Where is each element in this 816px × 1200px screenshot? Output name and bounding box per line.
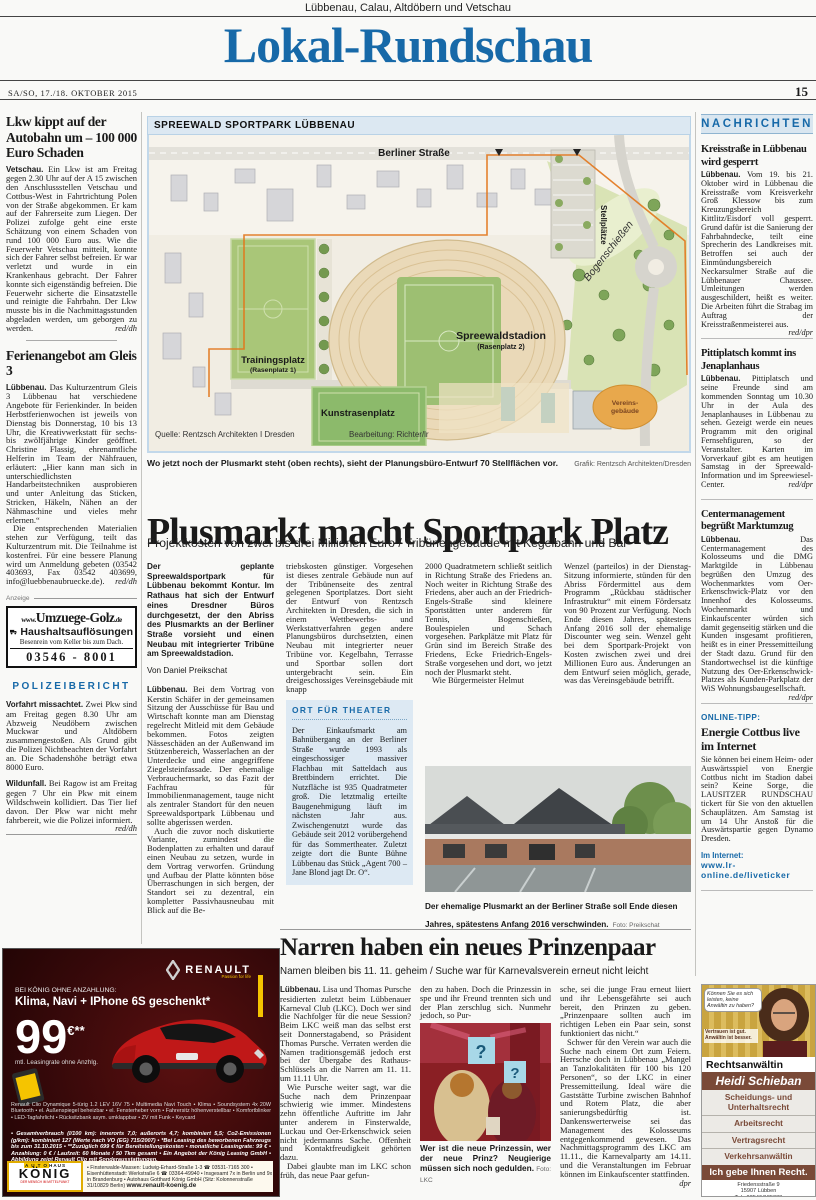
ad-slogan: Ich gebe Ihnen Recht. xyxy=(702,1165,815,1180)
svg-text:gebäude: gebäude xyxy=(611,408,639,415)
map-graphic: Berliner Straße Stellplätze Bogenschieße… xyxy=(147,135,691,453)
page-number: 15 xyxy=(795,84,808,100)
svg-text:?: ? xyxy=(510,1065,519,1082)
map-title: SPREEWALD SPORTPARK LÜBBENAU xyxy=(147,116,691,135)
article-body: Lübbenau. Das Kulturzentrum Gleis 3 Lübb… xyxy=(6,383,137,525)
news-heading: NACHRICHTEN xyxy=(701,114,813,134)
photo-credit: Foto: Preikschat xyxy=(613,922,660,929)
map-label-stadion: Spreewaldstadion xyxy=(456,330,546,342)
dateline: SA/SO, 17./18. OKTOBER 2015 15 xyxy=(8,84,808,100)
golz-url[interactable]: www.Umzuege-Golz.de xyxy=(10,610,133,626)
speech-bubble: Können Sie es sich leisten, keine Anwält… xyxy=(704,988,762,1012)
map-caption-row: Wo jetzt noch der Plusmarkt steht (oben … xyxy=(147,458,691,468)
divider xyxy=(701,703,813,704)
article-body: Vetschau. Ein Lkw ist am Freitag gegen 2… xyxy=(6,165,137,333)
main-col-1: Der geplante Spreewaldsportpark für Lübb… xyxy=(147,562,274,915)
news-article-body: Lübbenau. Vom 19. bis 21. Oktober wird i… xyxy=(701,171,813,329)
online-tipp-body: Sie können bei einem Heim- oder Auswärts… xyxy=(701,756,813,844)
divider xyxy=(701,499,813,500)
byline: Von Daniel Preikschat xyxy=(147,667,274,676)
narren-col-2: den zu haben. Doch die Prinzessin in spe… xyxy=(420,985,551,1187)
divider xyxy=(701,890,813,891)
map-label-verein: Vereins- xyxy=(612,400,638,407)
renault-offer-line1: BEI KÖNIG OHNE ANZAHLUNG: xyxy=(15,987,117,994)
article-lead: Der geplante Spreewaldsportpark für Lübb… xyxy=(147,562,274,659)
online-tipp-label: ONLINE-TIPP: xyxy=(701,713,813,722)
map-label-strasse: Berliner Straße xyxy=(378,148,450,159)
specialty-item: Verkehrsanwältin xyxy=(702,1148,815,1165)
map-editor: Bearbeitung: Richter/lr xyxy=(349,430,429,439)
map-label-stellplaetze: Stellplätze xyxy=(599,205,608,245)
article-headline: Lkw kippt auf der Autobahn um – 100 000 … xyxy=(6,114,137,161)
news-article-headline: Pittiplatsch kommt ins Jenaplanhaus xyxy=(701,348,813,373)
renault-brand: RENAULT Passion for life xyxy=(166,960,251,980)
golz-tagline: Besenrein vom Keller bis zum Dach. xyxy=(10,638,133,649)
masthead-title: Lokal-Rundschau xyxy=(0,17,816,73)
map-caption: Wo jetzt noch der Plusmarkt steht (oben … xyxy=(147,458,558,468)
golz-ad[interactable]: www.Umzuege-Golz.de Haushaltsauflösungen… xyxy=(6,606,137,668)
divider xyxy=(0,99,816,100)
specialty-item: Arbeitsrecht xyxy=(702,1115,815,1132)
dealer-url[interactable]: www.renault-koenig.de xyxy=(127,1182,197,1189)
divider xyxy=(292,719,407,720)
narren-col-3: sche, sei die junge Frau erneut liiert u… xyxy=(560,985,691,1187)
narren-col-1: Lübbenau. Lisa und Thomas Pursche residi… xyxy=(280,985,411,1187)
speech-bubble-2: Vertrauen ist gut. Anwältin ist besser. xyxy=(704,1029,758,1043)
golz-phone[interactable]: 03546 - 8001 xyxy=(10,649,133,666)
main-subhead: Projektkosten von zwei bis drei Millione… xyxy=(147,536,691,550)
article-headline: Ferienangebot am Gleis 3 xyxy=(6,348,137,379)
lawyer-name: Heidi Schieban xyxy=(702,1072,815,1090)
divider xyxy=(701,338,813,339)
news-article-body: Lübbenau. Das Centermanagement des Kolos… xyxy=(701,536,813,694)
prinzenpaar-photo: ? ? xyxy=(420,1023,551,1143)
renault-diamond-icon xyxy=(166,960,180,980)
infobox-body: Der Einkaufsmarkt am Bahnübergang an der… xyxy=(292,726,407,878)
lawyer-portrait: Können Sie es sich leisten, keine Anwält… xyxy=(702,985,815,1057)
police-report-heading: POLIZEIBERICHT xyxy=(6,681,137,692)
plusmarkt-caption: Der ehemalige Plusmarkt an der Berliner … xyxy=(425,896,691,932)
theater-infobox: ORT FÜR THEATER Der Einkaufsmarkt am Bah… xyxy=(286,700,413,885)
divider xyxy=(26,340,118,341)
sportpark-map: SPREEWALD SPORTPARK LÜBBENAU xyxy=(147,116,691,453)
news-article-headline: Centermanagement begrüßt Marktumzug xyxy=(701,509,813,534)
narren-article: Narren haben ein neues Prinzenpaar Namen… xyxy=(280,934,691,1187)
anzeige-marker: Anzeige xyxy=(6,595,137,602)
divider xyxy=(0,80,816,81)
schieban-ad[interactable]: Können Sie es sich leisten, keine Anwält… xyxy=(701,984,816,1197)
autohaus-koenig-logo: AUTOAUTOHAUSHAUS KÖNIG DER MENSCH IM MIT… xyxy=(7,1161,83,1192)
svg-text:(Rasenplatz 2): (Rasenplatz 2) xyxy=(477,344,524,351)
renault-consumption: • Gesamtverbrauch (l/100 km): innerorts … xyxy=(11,1131,271,1164)
internet-label: Im Internet: xyxy=(701,851,813,860)
liveticker-link[interactable]: www.lr-online.de/liveticker xyxy=(701,860,813,880)
lawyer-photo-figure xyxy=(753,985,815,1057)
map-credit: Grafik: Rentzsch Architekten/Dresden xyxy=(574,461,691,468)
lawyer-address: Friedensstraße 9 15907 Lübben Tel.: 0354… xyxy=(702,1180,815,1198)
police-item: Wildunfall. Bei Ragow ist am Freitag geg… xyxy=(6,779,137,824)
region-line: Lübbenau, Calau, Altdöbern und Vetschau xyxy=(0,2,816,14)
renault-ad[interactable]: RENAULT Passion for life BEI KÖNIG OHNE … xyxy=(2,948,280,1197)
article-body: Die entsprechenden Materialien stehen zu… xyxy=(6,524,137,586)
renault-specs: Renault Clio Dynamique 5-türig 1.2 LEV 1… xyxy=(11,1102,271,1121)
renault-dealer-footer: AUTOAUTOHAUSHAUS KÖNIG DER MENSCH IM MIT… xyxy=(7,1161,273,1192)
specialty-item: Scheidungs- und Unterhaltsrecht xyxy=(702,1090,815,1115)
specialty-item: Vertragsrecht xyxy=(702,1132,815,1149)
narren-photo-caption: Wer ist die neue Prinzessin, wer der neu… xyxy=(420,1143,551,1186)
news-article-headline: Kreisstraße in Lübbenau wird gesperrt xyxy=(701,144,813,169)
police-item: Vorfahrt missachtet. Zwei Pkw sind am Fr… xyxy=(6,700,137,771)
renault-car-image xyxy=(98,997,273,1097)
renault-price-sub: mtl. Leasingrate ohne Anzhlg. xyxy=(15,1059,98,1066)
narren-headline: Narren haben ein neues Prinzenpaar xyxy=(280,934,691,962)
news-column: NACHRICHTEN Kreisstraße in Lübbenau wird… xyxy=(701,114,813,900)
plusmarkt-photo xyxy=(425,766,691,892)
column-divider xyxy=(695,112,696,976)
golz-service: Haushaltsauflösungen xyxy=(10,626,133,638)
divider xyxy=(280,929,691,930)
map-label-kunstrasen: Kunstrasenplatz xyxy=(321,408,395,419)
online-tipp-headline: Energie Cottbus live im Internet xyxy=(701,726,813,753)
phone-image xyxy=(11,1065,54,1107)
main-col-2: triebskosten günstiger. Vorgesehen ist d… xyxy=(286,562,413,915)
svg-text:(Rasenplatz 1): (Rasenplatz 1) xyxy=(250,367,296,374)
column-divider xyxy=(141,112,142,944)
map-source: Quelle: Rentzsch Architekten I Dresden xyxy=(155,430,295,439)
truck-icon xyxy=(10,627,17,637)
dealer-info: • Finsterwalde-Massen: Ludwig-Erhard-Str… xyxy=(87,1165,273,1189)
divider xyxy=(6,834,137,835)
date-text: SA/SO, 17./18. OKTOBER 2015 xyxy=(8,88,137,98)
narren-subhead: Namen bleiben bis 11. 11. geheim / Suche… xyxy=(280,966,691,977)
lawyer-role: Rechtsanwältin xyxy=(702,1057,815,1072)
newspaper-page: Lübbenau, Calau, Altdöbern und Vetschau … xyxy=(0,0,816,1200)
news-article-body: Lübbenau. Pittiplatsch und seine Freunde… xyxy=(701,375,813,489)
infobox-heading: ORT FÜR THEATER xyxy=(292,706,407,715)
law-specialties: Scheidungs- und Unterhaltsrecht Arbeitsr… xyxy=(702,1090,815,1165)
map-label-training: Trainingsplatz xyxy=(241,355,305,366)
svg-text:?: ? xyxy=(476,1042,487,1062)
left-column: Lkw kippt auf der Autobahn um – 100 000 … xyxy=(6,114,137,835)
renault-price: 99€** xyxy=(15,1007,85,1060)
